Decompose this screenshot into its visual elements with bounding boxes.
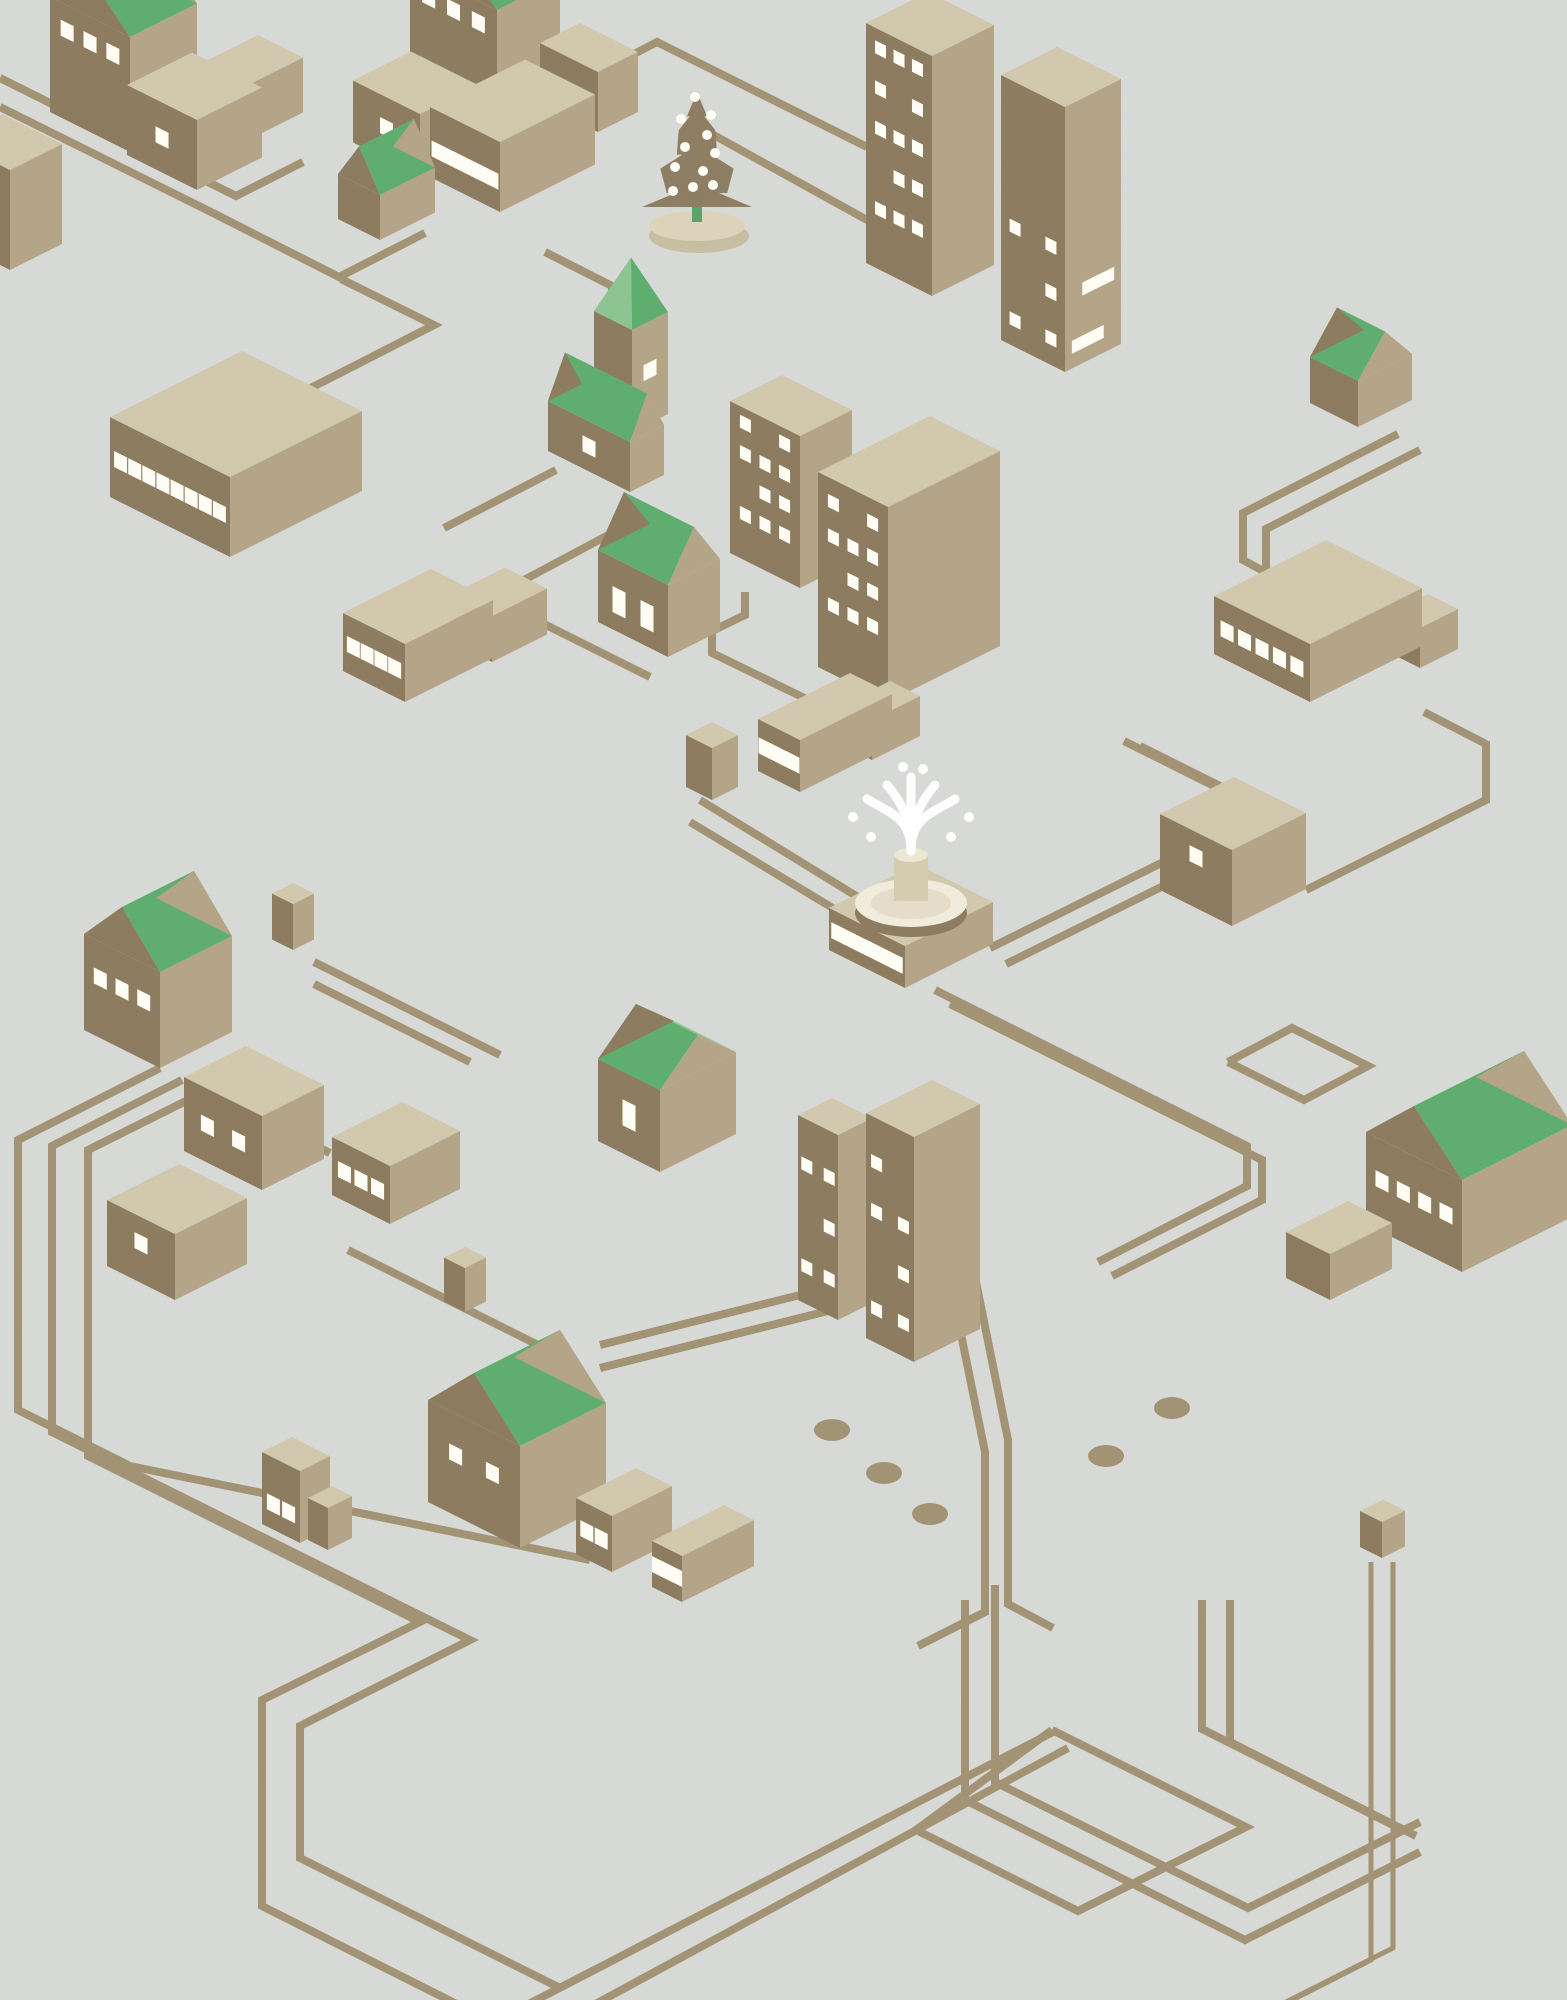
town-canvas — [0, 0, 1567, 2000]
film-grain-overlay — [0, 0, 1567, 2000]
town-map-illustration — [0, 0, 1567, 2000]
